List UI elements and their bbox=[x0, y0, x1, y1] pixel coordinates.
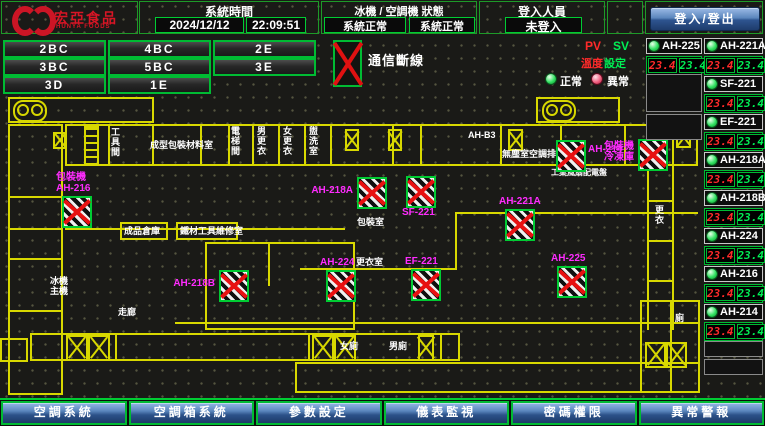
plan-device-label: SF-221 bbox=[402, 207, 435, 218]
room-label: 男廁 bbox=[389, 341, 407, 351]
device-name: AH-218B bbox=[720, 192, 765, 204]
plan-device-icon[interactable] bbox=[505, 209, 535, 241]
empty-panel bbox=[704, 359, 763, 375]
menu-button-空調箱系統[interactable]: 空調箱系統 bbox=[129, 401, 255, 425]
wall-segment bbox=[649, 280, 673, 282]
device-name: AH-224 bbox=[720, 230, 758, 242]
device-panel-ah-224[interactable]: AH-224 bbox=[704, 228, 763, 244]
device-name: AH-216 bbox=[720, 268, 758, 280]
floor-button-2e[interactable]: 2E bbox=[213, 40, 316, 58]
sv-sub-label: 設定 bbox=[604, 55, 626, 71]
normal-label: 正常 bbox=[560, 73, 582, 89]
device-status-led-icon bbox=[707, 269, 717, 279]
device-status-led-icon bbox=[649, 41, 659, 51]
device-status-led-icon bbox=[707, 79, 717, 89]
plan-device-icon[interactable] bbox=[557, 266, 587, 298]
pv-value: 23.4 bbox=[706, 286, 735, 301]
device-name: AH-218A bbox=[720, 154, 765, 166]
device-values-ah-224: 23.423.4 bbox=[704, 246, 763, 265]
comm-loss-label: 通信斷線 bbox=[368, 50, 424, 69]
sv-value: 23.4 bbox=[737, 324, 765, 339]
login-logout-button[interactable]: 登入/登出 bbox=[650, 7, 760, 31]
device-values-ah-216: 23.423.4 bbox=[704, 284, 763, 303]
menu-button-異常警報[interactable]: 異常警報 bbox=[639, 401, 765, 425]
normal-led-icon bbox=[546, 74, 556, 84]
machine-status-section: 冰機 / 空調機 狀態 系統正常 系統正常 bbox=[321, 1, 477, 34]
menu-button-密碼權限[interactable]: 密碼權限 bbox=[511, 401, 637, 425]
floor-button-5bc[interactable]: 5BC bbox=[108, 58, 211, 76]
device-values-ah-225: 23.423.4 bbox=[646, 56, 702, 75]
sv-value: 23.4 bbox=[737, 210, 765, 225]
door-x-icon bbox=[666, 342, 687, 368]
device-values-ef-221: 23.423.4 bbox=[704, 132, 763, 151]
room-label: 盥洗室 bbox=[308, 126, 318, 156]
plan-device-label: AH-218B bbox=[157, 278, 215, 289]
plan-device-label: 包裝機 AH-216 bbox=[56, 172, 90, 194]
wall-segment bbox=[455, 212, 457, 270]
system-time-section: 系統時間 2024/12/12 22:09:51 bbox=[139, 1, 319, 34]
pv-header: PV bbox=[585, 39, 601, 53]
device-panel-ah-218a[interactable]: AH-218A bbox=[704, 152, 763, 168]
pv-sub-label: 溫度 bbox=[581, 55, 603, 71]
sv-value: 23.4 bbox=[737, 248, 765, 263]
pv-value: 23.4 bbox=[706, 324, 735, 339]
wall-segment bbox=[440, 333, 442, 361]
wall-segment bbox=[304, 124, 306, 166]
wall-segment bbox=[115, 333, 117, 361]
device-name: AH-225 bbox=[662, 40, 700, 52]
pv-value: 23.4 bbox=[706, 172, 735, 187]
room-label: 鐵材工具維修室 bbox=[180, 226, 243, 236]
device-status-led-icon bbox=[707, 117, 717, 127]
login-person-value: 未登入 bbox=[505, 17, 582, 33]
device-name: AH-214 bbox=[720, 306, 758, 318]
door-x-icon bbox=[66, 335, 88, 361]
login-person-section: 登入人員 未登入 bbox=[479, 1, 605, 34]
device-panel-ah-216[interactable]: AH-216 bbox=[704, 266, 763, 282]
pv-value: 23.4 bbox=[648, 58, 677, 73]
empty-panel bbox=[704, 341, 763, 357]
bottom-menu: 空調系統空調箱系統參數設定儀表監視密碼權限異常警報 bbox=[0, 398, 765, 426]
login-button-section: 登入/登出 bbox=[645, 1, 763, 34]
logo-subtitle: HUNYA FOODS bbox=[56, 24, 111, 30]
menu-button-參數設定[interactable]: 參數設定 bbox=[256, 401, 382, 425]
room-label: 冰機 主機 bbox=[50, 276, 68, 296]
door-x-icon bbox=[645, 342, 666, 368]
plan-device-icon[interactable] bbox=[62, 196, 92, 228]
wall-segment bbox=[500, 124, 502, 166]
door-x-icon bbox=[388, 129, 402, 151]
door-x-icon bbox=[312, 335, 334, 361]
room-label: 女更衣 bbox=[282, 126, 292, 156]
stair-flight-icon bbox=[84, 126, 99, 166]
hmi-screen: 宏亞食品 HUNYA FOODS 系統時間 2024/12/12 22:09:5… bbox=[0, 0, 765, 426]
room-label: AH-B3 bbox=[468, 130, 496, 140]
room-label: 電梯間 bbox=[230, 126, 240, 156]
floor-button-3d[interactable]: 3D bbox=[3, 76, 106, 94]
device-values-sf-221: 23.423.4 bbox=[704, 94, 763, 113]
plan-device-label: AH-225 bbox=[551, 253, 585, 264]
wall-segment bbox=[672, 124, 674, 330]
abnormal-led-icon bbox=[592, 74, 602, 84]
wall-segment bbox=[0, 338, 28, 362]
sv-value: 23.4 bbox=[737, 134, 765, 149]
stairs-icon bbox=[542, 100, 576, 122]
ac-status-value: 系統正常 bbox=[409, 17, 475, 33]
wall-segment bbox=[308, 333, 310, 361]
wall-segment bbox=[649, 200, 673, 202]
floor-button-1e[interactable]: 1E bbox=[108, 76, 211, 94]
room-label: 成品倉庫 bbox=[124, 226, 160, 236]
room-label: 女廁 bbox=[340, 341, 358, 351]
plan-device-label: AH-218A bbox=[295, 185, 353, 196]
device-panel-ah-214[interactable]: AH-214 bbox=[704, 304, 763, 320]
device-values-ah-218b: 23.423.4 bbox=[704, 208, 763, 227]
plan-device-label: AH-224 bbox=[320, 257, 354, 268]
wall-segment bbox=[8, 258, 63, 260]
wall-segment bbox=[420, 124, 422, 166]
device-values-ah-221a: 23.423.4 bbox=[704, 56, 763, 75]
wall-segment bbox=[268, 242, 270, 286]
device-status-led-icon bbox=[707, 307, 717, 317]
plan-device-label: 包裝機 冷凍庫 bbox=[576, 141, 634, 163]
empty-panel bbox=[646, 114, 702, 140]
device-values-ah-218a: 23.423.4 bbox=[704, 170, 763, 189]
room-label: 成型包裝材料室 bbox=[150, 140, 213, 150]
plan-device-icon[interactable] bbox=[219, 270, 249, 302]
wall-segment bbox=[649, 240, 673, 242]
comm-loss-icon bbox=[333, 40, 362, 87]
pv-value: 23.4 bbox=[706, 248, 735, 263]
room-label: 廁 bbox=[675, 313, 684, 323]
sv-value: 23.4 bbox=[737, 172, 765, 187]
door-x-icon bbox=[88, 335, 110, 361]
room-label: 走廊 bbox=[118, 307, 136, 317]
device-status-led-icon bbox=[707, 193, 717, 203]
wall-segment bbox=[278, 124, 280, 166]
system-date-value: 2024/12/12 bbox=[155, 17, 244, 33]
abnormal-label: 異常 bbox=[607, 73, 629, 89]
menu-button-空調系統[interactable]: 空調系統 bbox=[1, 401, 127, 425]
sv-value: 23.4 bbox=[737, 286, 765, 301]
pv-value: 23.4 bbox=[706, 134, 735, 149]
plan-device-icon[interactable] bbox=[357, 177, 387, 209]
device-panel-ah-221a[interactable]: AH-221A bbox=[704, 38, 763, 54]
device-panel-ah-218b[interactable]: AH-218B bbox=[704, 190, 763, 206]
menu-button-儀表監視[interactable]: 儀表監視 bbox=[384, 401, 510, 425]
floor-button-3e[interactable]: 3E bbox=[213, 58, 316, 76]
wall-segment bbox=[8, 196, 63, 198]
plan-device-label: AH-221A bbox=[499, 196, 541, 207]
device-values-ah-214: 23.423.4 bbox=[704, 322, 763, 341]
system-clock-value: 22:09:51 bbox=[246, 17, 306, 33]
wall-segment bbox=[175, 322, 700, 324]
floor-button-4bc[interactable]: 4BC bbox=[108, 40, 211, 58]
plan-device-icon[interactable] bbox=[326, 270, 356, 302]
device-status-led-icon bbox=[707, 41, 717, 51]
wall-segment bbox=[8, 228, 63, 230]
door-x-icon bbox=[418, 335, 434, 361]
device-panel-sf-221[interactable]: SF-221 bbox=[704, 76, 763, 92]
door-x-icon bbox=[53, 132, 66, 149]
device-name: EF-221 bbox=[720, 116, 756, 128]
door-x-icon bbox=[345, 129, 359, 151]
sv-header: SV bbox=[613, 39, 629, 53]
sv-value: 23.4 bbox=[737, 96, 765, 111]
plan-device-icon[interactable] bbox=[411, 269, 441, 301]
plan-device-label: EF-221 bbox=[405, 256, 438, 267]
stairs-icon bbox=[13, 100, 47, 122]
device-status-led-icon bbox=[707, 155, 717, 165]
device-panel-ah-225[interactable]: AH-225 bbox=[646, 38, 702, 54]
chiller-status-value: 系統正常 bbox=[324, 17, 406, 33]
empty-panel bbox=[646, 74, 702, 112]
floor-button-3bc[interactable]: 3BC bbox=[3, 58, 106, 76]
plan-device-icon[interactable] bbox=[406, 176, 436, 208]
device-name: SF-221 bbox=[720, 78, 756, 90]
room-label: 包裝室 bbox=[357, 217, 384, 227]
room-label: 更衣室 bbox=[356, 257, 383, 267]
sv-value: 23.4 bbox=[679, 58, 708, 73]
door-x-icon bbox=[508, 129, 523, 151]
device-panel-ef-221[interactable]: EF-221 bbox=[704, 114, 763, 130]
logo-section: 宏亞食品 HUNYA FOODS bbox=[1, 1, 138, 34]
device-status-led-icon bbox=[707, 231, 717, 241]
room-label: 工具間 bbox=[110, 127, 120, 157]
room-label: 男更衣 bbox=[256, 126, 266, 156]
pv-value: 23.4 bbox=[706, 96, 735, 111]
logo-icon bbox=[30, 6, 56, 36]
wall-segment bbox=[330, 124, 332, 166]
floor-button-2bc[interactable]: 2BC bbox=[3, 40, 106, 58]
sv-value: 23.4 bbox=[737, 58, 765, 73]
room-label: 更衣 bbox=[654, 205, 664, 225]
wall-segment bbox=[252, 124, 254, 166]
pv-value: 23.4 bbox=[706, 58, 735, 73]
pv-value: 23.4 bbox=[706, 210, 735, 225]
wall-segment bbox=[8, 310, 63, 312]
plan-device-icon[interactable] bbox=[638, 139, 668, 171]
header-spacer bbox=[607, 1, 643, 34]
device-name: AH-221A bbox=[720, 40, 765, 52]
